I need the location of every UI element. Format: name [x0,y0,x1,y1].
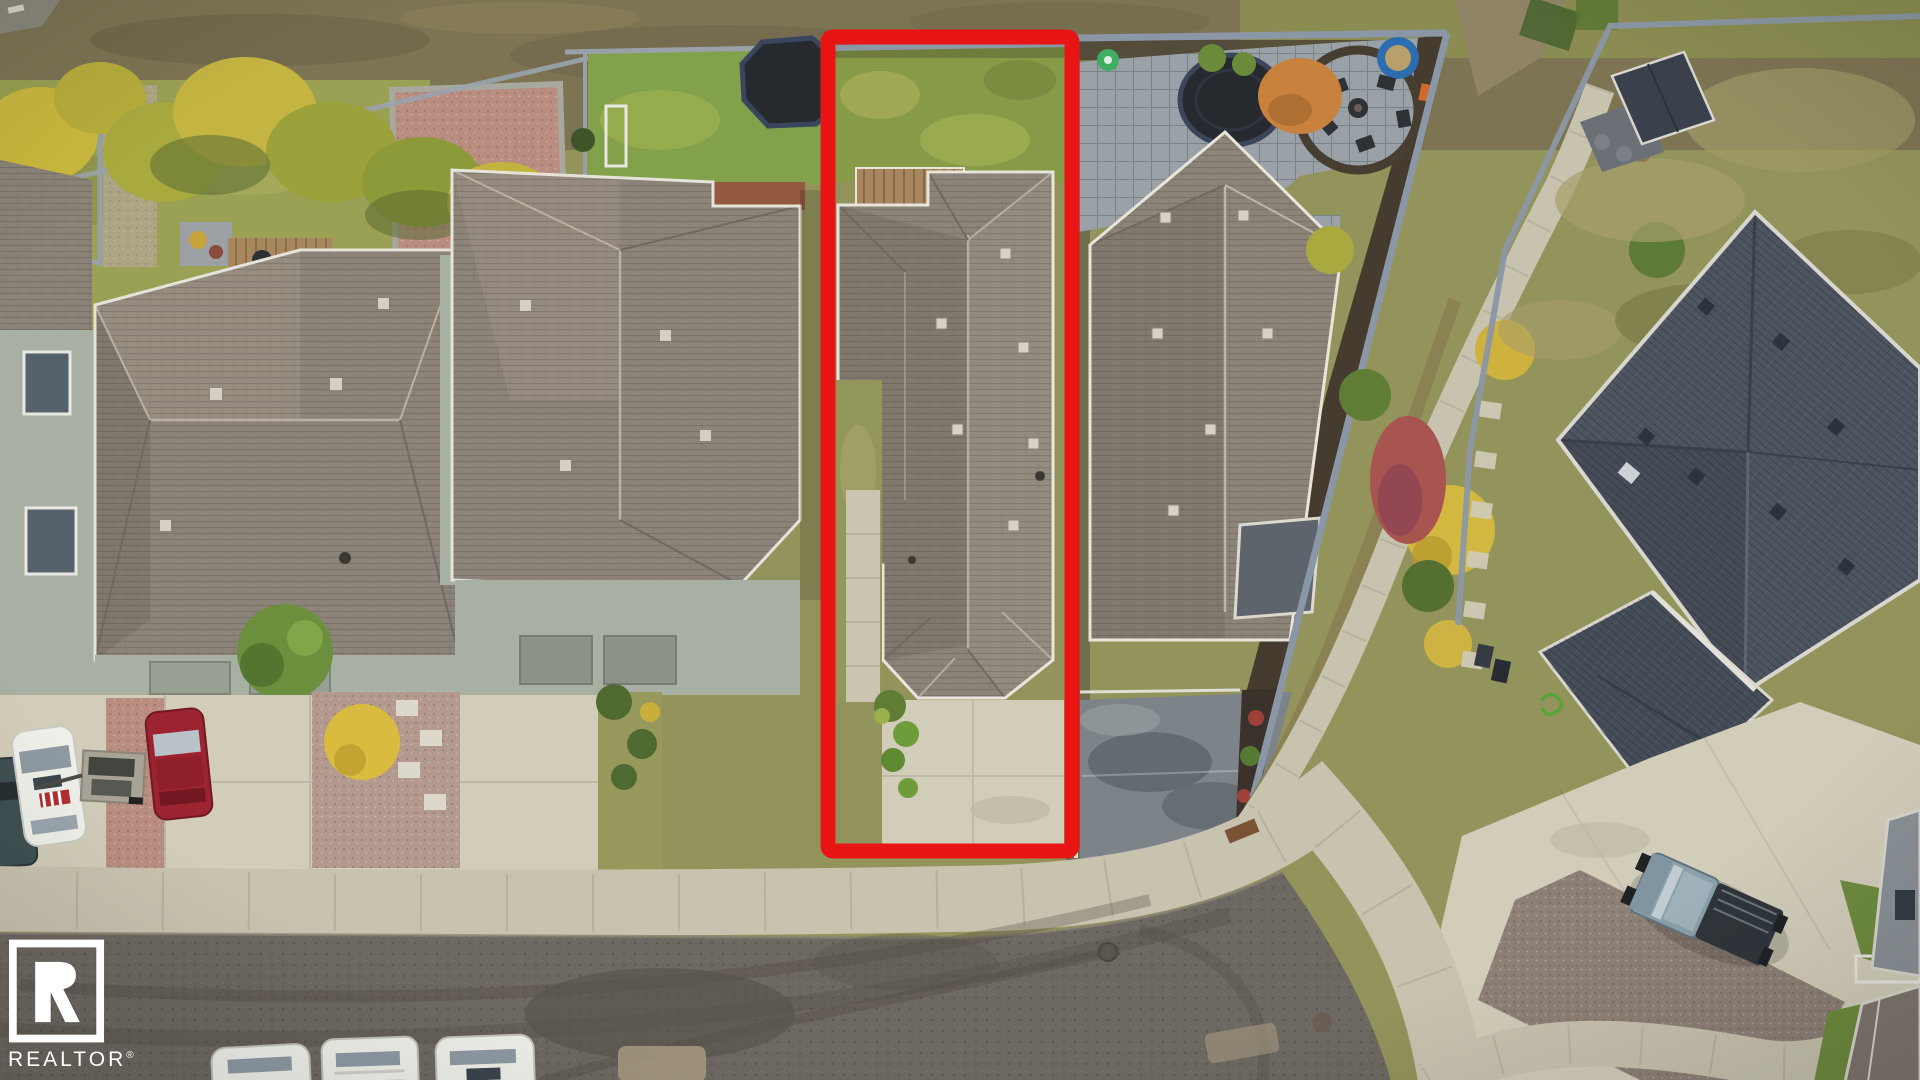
realtor-logo-r [35,962,80,1022]
realtor-logo-icon [8,938,105,1046]
realtor-wordmark: REALTOR® [8,1048,148,1072]
realtor-watermark: REALTOR® [8,938,148,1072]
registered-symbol: ® [126,1050,133,1061]
aerial-scene [0,0,1920,1080]
realtor-brand-text: REALTOR [8,1048,126,1071]
aerial-property-photo: REALTOR® [0,0,1920,1080]
vignette [0,0,1920,1080]
